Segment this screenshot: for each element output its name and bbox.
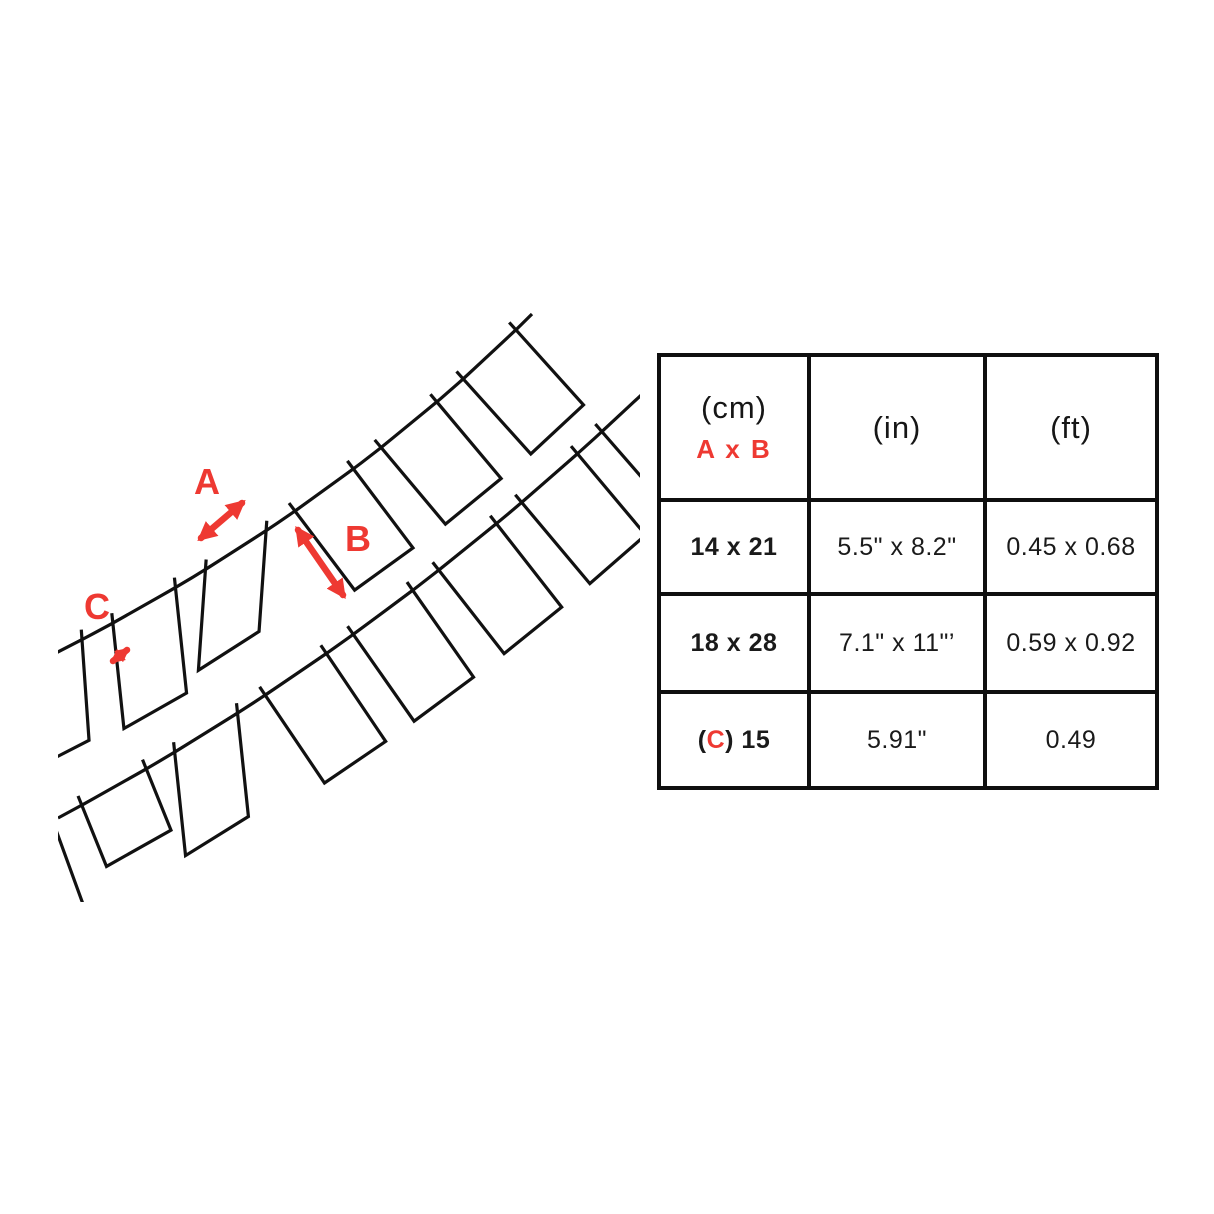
header-cell-in: (in): [809, 355, 985, 500]
cm-size-cell: 14 x 21: [659, 500, 809, 594]
ft-size-cell: 0.45 x 0.68: [985, 500, 1157, 594]
ft-size-cell: 0.59 x 0.92: [985, 594, 1157, 692]
ft-size-cell: 0.49: [985, 692, 1157, 788]
a-x-b-label: A x B: [661, 434, 807, 465]
in-size-value: 5.91": [867, 726, 927, 754]
cm-size-cell: 18 x 28: [659, 594, 809, 692]
flag-corner-tick: [289, 503, 295, 511]
flag-corner-tick: [236, 703, 237, 713]
in-unit-label: (in): [873, 410, 922, 445]
flag-corner-tick: [348, 626, 354, 634]
dimensions-table: (cm) A x B (in) (ft) 14 x 21 5.5" x 8.2"…: [657, 353, 1159, 790]
paren-open: (: [698, 726, 707, 754]
flag-corner-tick: [407, 582, 413, 590]
flag-corner-tick: [81, 630, 82, 640]
in-size-value: 5.5" x 8.2": [837, 533, 956, 561]
flag-corner-tick: [595, 424, 602, 432]
flag-corner-tick: [490, 516, 496, 524]
in-size-value: 7.1" x 11"’: [839, 629, 955, 657]
flag-corner-tick: [321, 645, 327, 653]
flag-corner-tick: [112, 613, 113, 623]
flag-corner-tick: [515, 495, 521, 503]
flag-corner-tick: [375, 440, 381, 448]
paren-close-value: ) 15: [725, 726, 770, 754]
flag-corner-tick: [509, 322, 516, 329]
flag-corner-tick: [457, 371, 464, 378]
cm-size-value: 18 x 28: [691, 629, 778, 657]
bunting-flags-diagram: A B C: [58, 290, 640, 902]
in-size-cell: 5.91": [809, 692, 985, 788]
pennant-flag: [439, 524, 562, 654]
ft-unit-label: (ft): [1050, 410, 1092, 445]
pennant-flag: [82, 769, 171, 867]
table-row: 18 x 28 7.1" x 11"’ 0.59 x 0.92: [659, 594, 1157, 692]
cm-size-cell-c: (C) 15: [659, 692, 809, 788]
table-row: 14 x 21 5.5" x 8.2" 0.45 x 0.68: [659, 500, 1157, 594]
pennant-flag: [175, 713, 249, 855]
in-size-cell: 5.5" x 8.2": [809, 500, 985, 594]
pennant-flag: [58, 821, 87, 902]
cm-unit-label: (cm): [661, 390, 807, 426]
ft-size-value: 0.45 x 0.68: [1006, 533, 1135, 561]
pennant-flag: [353, 590, 473, 721]
ft-size-value: 0.59 x 0.92: [1006, 629, 1135, 657]
pennant-flag: [381, 402, 501, 524]
pennant-flag: [265, 654, 385, 783]
pennant-flag: [113, 588, 187, 729]
pennant-flag: [58, 640, 89, 774]
pennant-flag: [463, 330, 583, 454]
flag-corner-tick: [260, 687, 266, 695]
pennant-flag: [198, 531, 266, 671]
flag-corner-tick: [433, 562, 439, 570]
flag-corner-tick: [174, 742, 175, 752]
dimension-arrow-a: [201, 503, 242, 538]
pennant-flag: [522, 454, 640, 584]
flag-corner-tick: [174, 578, 175, 588]
header-cell-cm: (cm) A x B: [659, 355, 809, 500]
flag-corner-tick: [78, 796, 82, 805]
flag-strings: [58, 314, 640, 902]
dimension-label-b: B: [345, 518, 371, 559]
flag-corner-tick: [347, 461, 353, 469]
c-letter: C: [707, 726, 726, 754]
page: { "diagram": { "label_a": "A", "label_b"…: [0, 0, 1214, 1214]
flag-corner-tick: [205, 560, 206, 570]
table-header-row: (cm) A x B (in) (ft): [659, 355, 1157, 500]
in-size-cell: 7.1" x 11"’: [809, 594, 985, 692]
header-cell-ft: (ft): [985, 355, 1157, 500]
cm-size-value: 14 x 21: [691, 533, 778, 561]
flag-corner-tick: [266, 521, 267, 531]
dimension-label-a: A: [194, 461, 220, 502]
flag-corner-tick: [143, 760, 147, 769]
dimension-label-c: C: [84, 586, 110, 627]
ft-size-value: 0.49: [1046, 726, 1097, 754]
table-row: (C) 15 5.91" 0.49: [659, 692, 1157, 788]
flag-corner-tick: [571, 446, 577, 454]
flag-corner-tick: [430, 394, 436, 402]
